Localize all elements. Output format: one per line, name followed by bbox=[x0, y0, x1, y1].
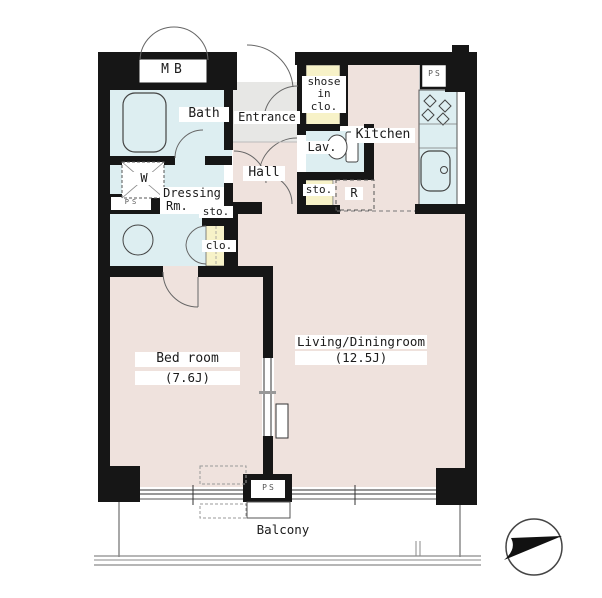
storage-hall-label: sto. bbox=[199, 206, 233, 218]
wall-partition-upper bbox=[263, 266, 273, 358]
compass-icon bbox=[504, 519, 562, 575]
slider-crossbar bbox=[259, 391, 276, 394]
living-dining-label: Living/Diningroom (12.5J) bbox=[294, 335, 428, 365]
ps-bottom-label: PS bbox=[251, 484, 287, 493]
hall-label: Hall bbox=[243, 166, 285, 181]
entrance-label: Entrance bbox=[234, 111, 300, 124]
wall-bath-bottom-2 bbox=[205, 156, 232, 165]
mb-label: MB bbox=[138, 63, 210, 78]
bath-label: Bath bbox=[179, 107, 229, 122]
shoes-closet-label: shose in clo. bbox=[302, 76, 346, 113]
wall-partition-lower bbox=[263, 436, 273, 476]
wall-hall-west-2 bbox=[224, 183, 233, 202]
wall-bedroom-top-1 bbox=[98, 266, 163, 277]
fridge-label: R bbox=[345, 187, 363, 200]
wall-corner-bl bbox=[98, 466, 140, 502]
ps-top-label: PS bbox=[421, 70, 449, 79]
floorplan-drawing bbox=[0, 0, 602, 598]
wall-lav-bottom bbox=[297, 172, 374, 180]
balcony-label: Balcony bbox=[251, 523, 315, 537]
wall-right bbox=[465, 52, 477, 505]
kitchen-label: Kitchen bbox=[351, 128, 415, 143]
ac-unit-balcony bbox=[200, 504, 246, 518]
floor-plan: MB Bath Entrance shose in clo. Lav. Kitc… bbox=[0, 0, 602, 598]
wall-tab-tr bbox=[452, 45, 469, 53]
wall-corner-br bbox=[436, 468, 477, 505]
balcony-step-box bbox=[247, 502, 290, 518]
lav-label: Lav. bbox=[303, 141, 341, 154]
slider-panel bbox=[276, 404, 288, 438]
washer-label: W bbox=[133, 172, 155, 185]
wall-storage-bottom bbox=[297, 205, 340, 214]
closet-label: clo. bbox=[202, 240, 236, 252]
wall-shoes-lav-div bbox=[306, 124, 340, 131]
wall-bedroom-top-2 bbox=[198, 266, 273, 277]
wall-counter-stub bbox=[415, 204, 465, 214]
kitchen-counter bbox=[419, 90, 457, 205]
ps-left-label: PS bbox=[111, 199, 153, 207]
kitchen-floor-1 bbox=[342, 65, 419, 126]
bedroom-label: Bed room (7.6J) bbox=[134, 352, 241, 385]
wall-closet-top-stub bbox=[202, 218, 228, 226]
entrance-door-arc bbox=[247, 45, 293, 87]
storage-kitchen-label: sto. bbox=[303, 184, 335, 196]
